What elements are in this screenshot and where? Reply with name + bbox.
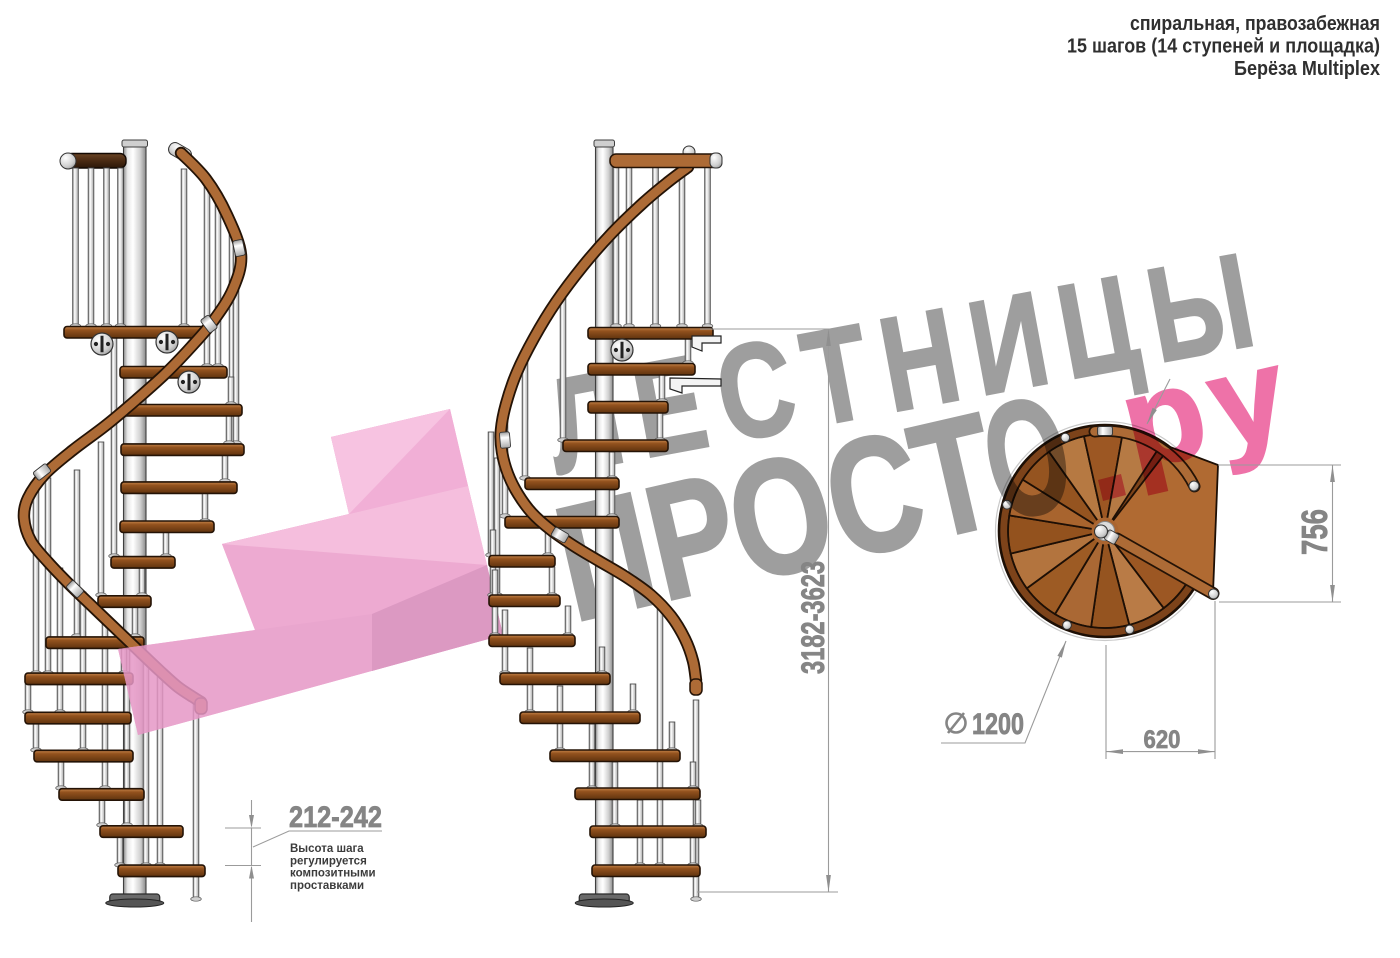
svg-text:620: 620 xyxy=(1144,726,1181,754)
svg-text:3182-3623: 3182-3623 xyxy=(795,561,831,674)
svg-text:1200: 1200 xyxy=(972,708,1024,741)
svg-text:Высота шага: Высота шага xyxy=(290,843,364,855)
svg-text:756: 756 xyxy=(1294,509,1335,555)
svg-text:212-242: 212-242 xyxy=(289,801,382,834)
svg-text:15 шагов (14 ступеней и площад: 15 шагов (14 ступеней и площадка) xyxy=(1067,35,1380,58)
svg-text:Берёза Multiplex: Берёза Multiplex xyxy=(1234,57,1381,80)
svg-text:композитными: композитными xyxy=(290,868,376,880)
svg-text:спиральная, правозабежная: спиральная, правозабежная xyxy=(1130,12,1380,35)
svg-text:регулируется: регулируется xyxy=(290,855,367,867)
svg-text:проставками: проставками xyxy=(290,880,364,892)
